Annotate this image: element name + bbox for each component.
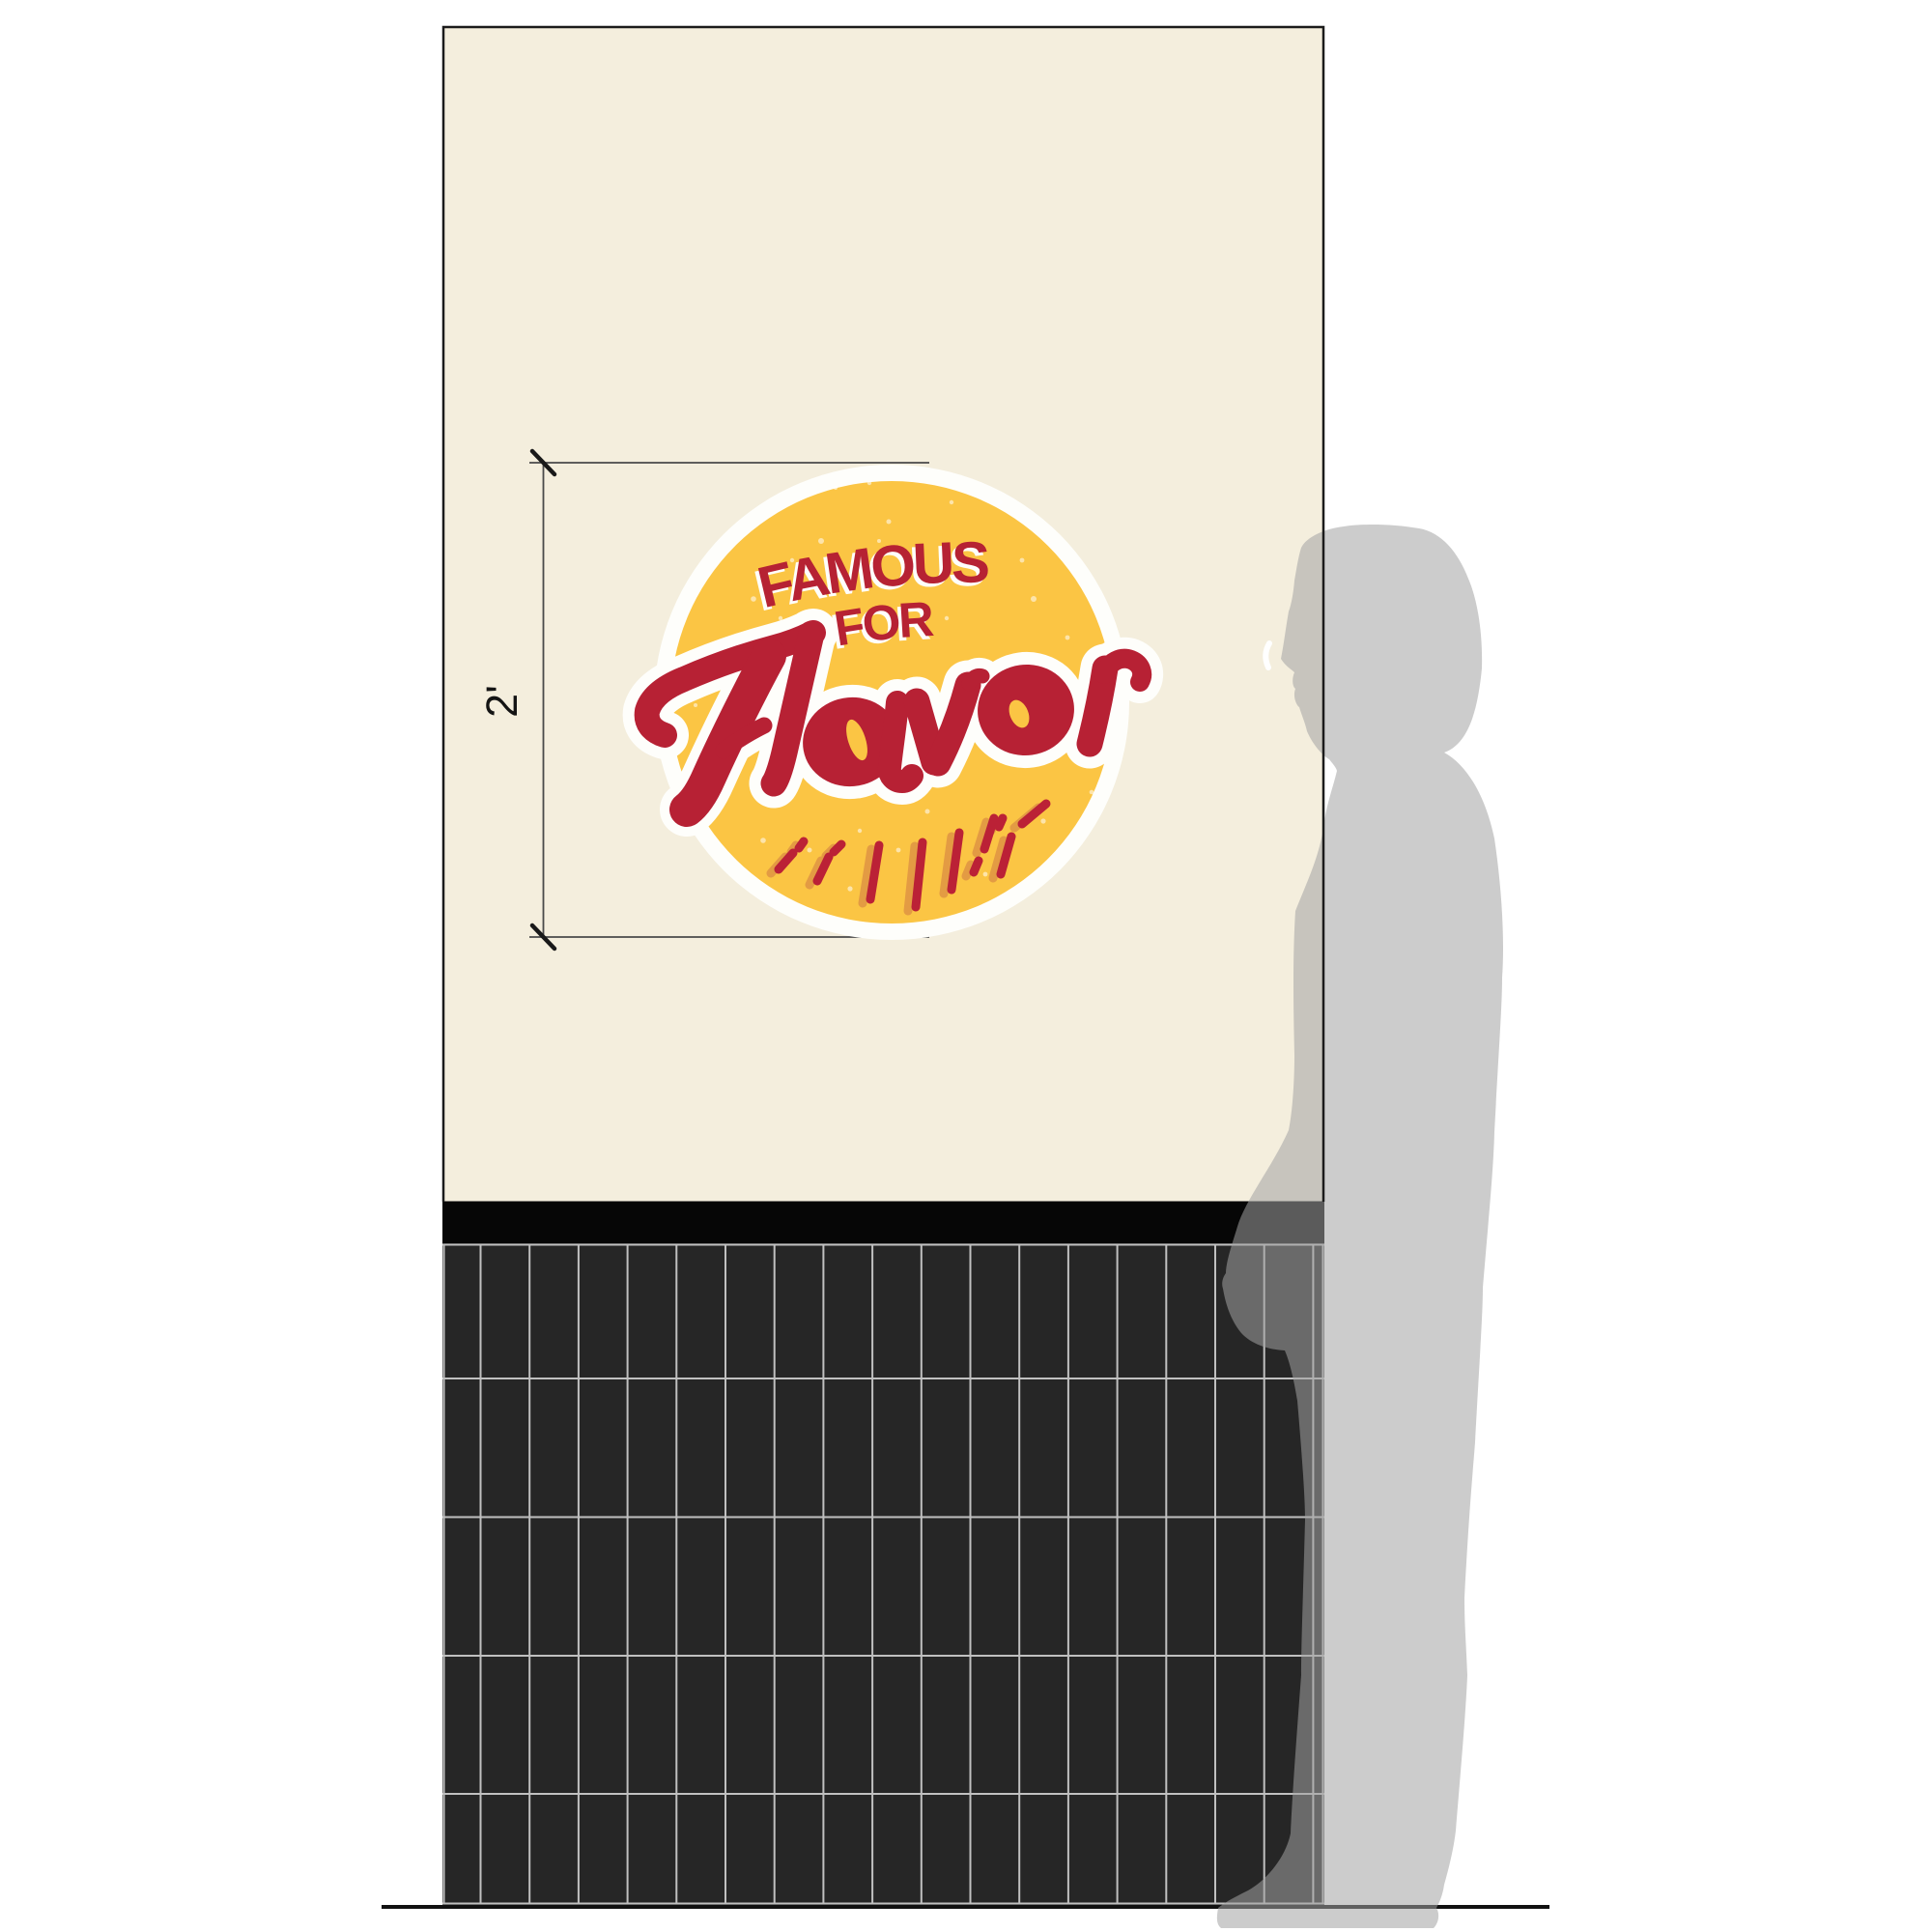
svg-text:2': 2' xyxy=(477,685,526,718)
svg-text:FOR: FOR xyxy=(831,591,935,656)
